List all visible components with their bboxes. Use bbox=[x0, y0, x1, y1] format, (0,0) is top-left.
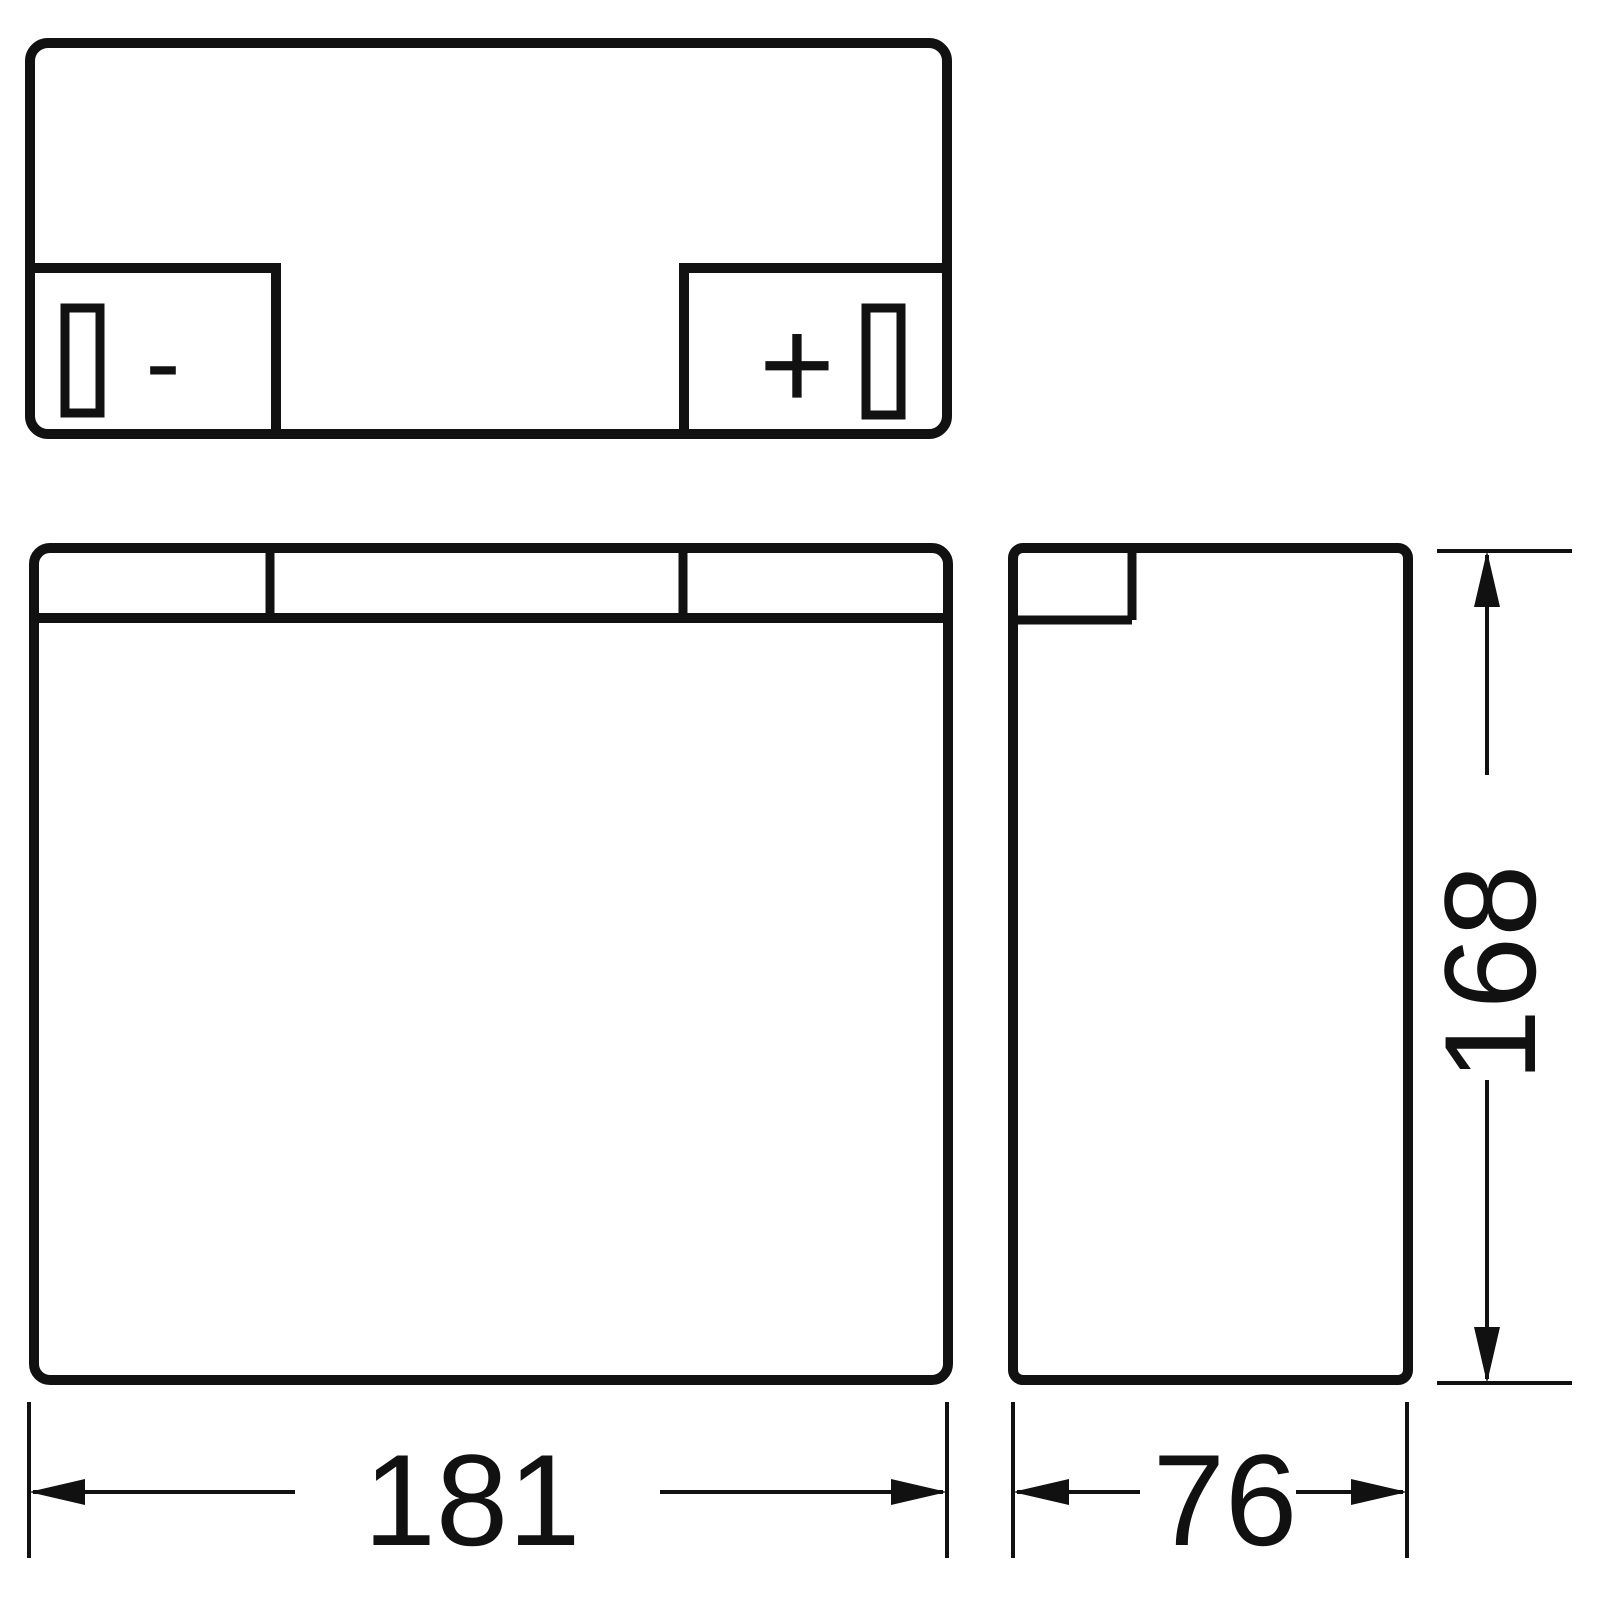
arrow-right-icon bbox=[891, 1479, 947, 1505]
arrow-down-icon bbox=[1474, 1327, 1500, 1383]
front-view-outline bbox=[34, 548, 948, 1380]
arrow-up-icon bbox=[1474, 551, 1500, 607]
height-dimension-label: 168 bbox=[1417, 865, 1563, 1082]
side-view-outline bbox=[1013, 548, 1408, 1380]
arrow-left-icon bbox=[1013, 1479, 1069, 1505]
positive-terminal-slot bbox=[866, 308, 901, 415]
depth-dimension-label: 76 bbox=[1153, 1427, 1298, 1573]
battery-technical-drawing: - + 181 76 bbox=[0, 0, 1600, 1600]
width-dimension: 181 bbox=[29, 1402, 947, 1573]
side-view bbox=[1013, 548, 1408, 1380]
width-dimension-label: 181 bbox=[364, 1427, 581, 1573]
depth-dimension: 76 bbox=[1013, 1402, 1407, 1573]
top-view: - + bbox=[30, 43, 947, 437]
arrow-left-icon bbox=[29, 1479, 85, 1505]
arrow-right-icon bbox=[1351, 1479, 1407, 1505]
negative-terminal-slot bbox=[65, 308, 100, 413]
minus-icon: - bbox=[146, 305, 181, 422]
front-view bbox=[34, 548, 948, 1380]
plus-icon: + bbox=[759, 291, 835, 437]
height-dimension: 168 bbox=[1417, 551, 1572, 1383]
